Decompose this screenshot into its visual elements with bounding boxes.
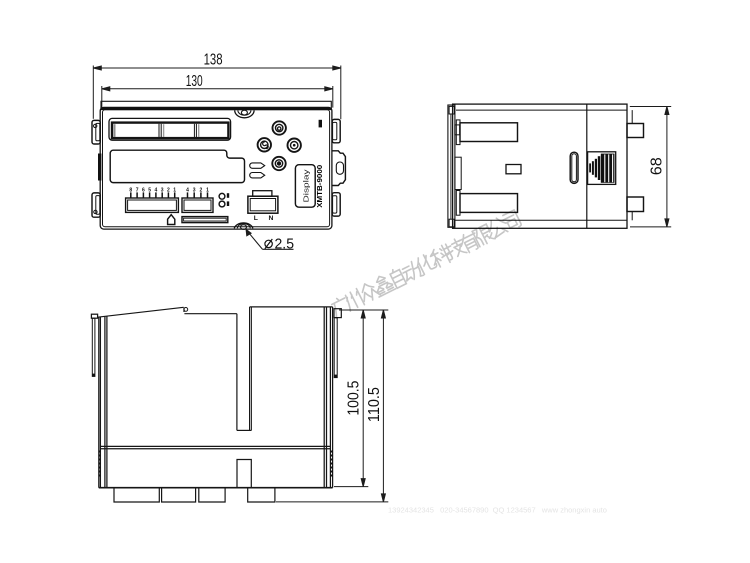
svg-text:2.5: 2.5 (275, 236, 295, 252)
svg-text:3: 3 (161, 188, 164, 194)
svg-text:138: 138 (204, 52, 223, 69)
svg-text:8: 8 (129, 188, 132, 194)
svg-text:N: N (268, 215, 273, 222)
svg-text:7: 7 (136, 188, 139, 194)
svg-text:1: 1 (173, 188, 176, 194)
svg-text:68: 68 (649, 157, 666, 175)
svg-text:130: 130 (186, 73, 203, 90)
svg-text:XMTB-9000: XMTB-9000 (317, 165, 324, 208)
svg-text:3: 3 (193, 188, 196, 194)
svg-text:110.5: 110.5 (366, 387, 383, 422)
svg-text:6: 6 (142, 188, 145, 194)
svg-text:L: L (254, 215, 258, 222)
svg-text:2: 2 (167, 188, 170, 194)
svg-text:Display: Display (301, 169, 310, 202)
svg-text:5: 5 (148, 188, 151, 194)
svg-text:4: 4 (155, 188, 158, 194)
svg-text:1: 1 (206, 188, 209, 194)
svg-text:4: 4 (186, 188, 189, 194)
svg-text:2: 2 (200, 188, 203, 194)
svg-text:100.5: 100.5 (345, 381, 362, 416)
svg-text:13924342345 020-34567890 QQ: 13924342345 020-34567890 QQ 1234567 www … (388, 506, 607, 515)
